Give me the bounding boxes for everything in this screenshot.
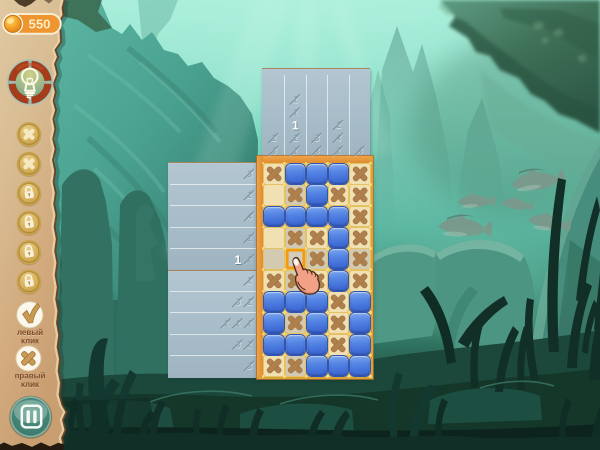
svg-text:клик: клик — [21, 380, 40, 389]
svg-text:клик: клик — [21, 336, 40, 345]
svg-text:550: 550 — [28, 17, 50, 32]
